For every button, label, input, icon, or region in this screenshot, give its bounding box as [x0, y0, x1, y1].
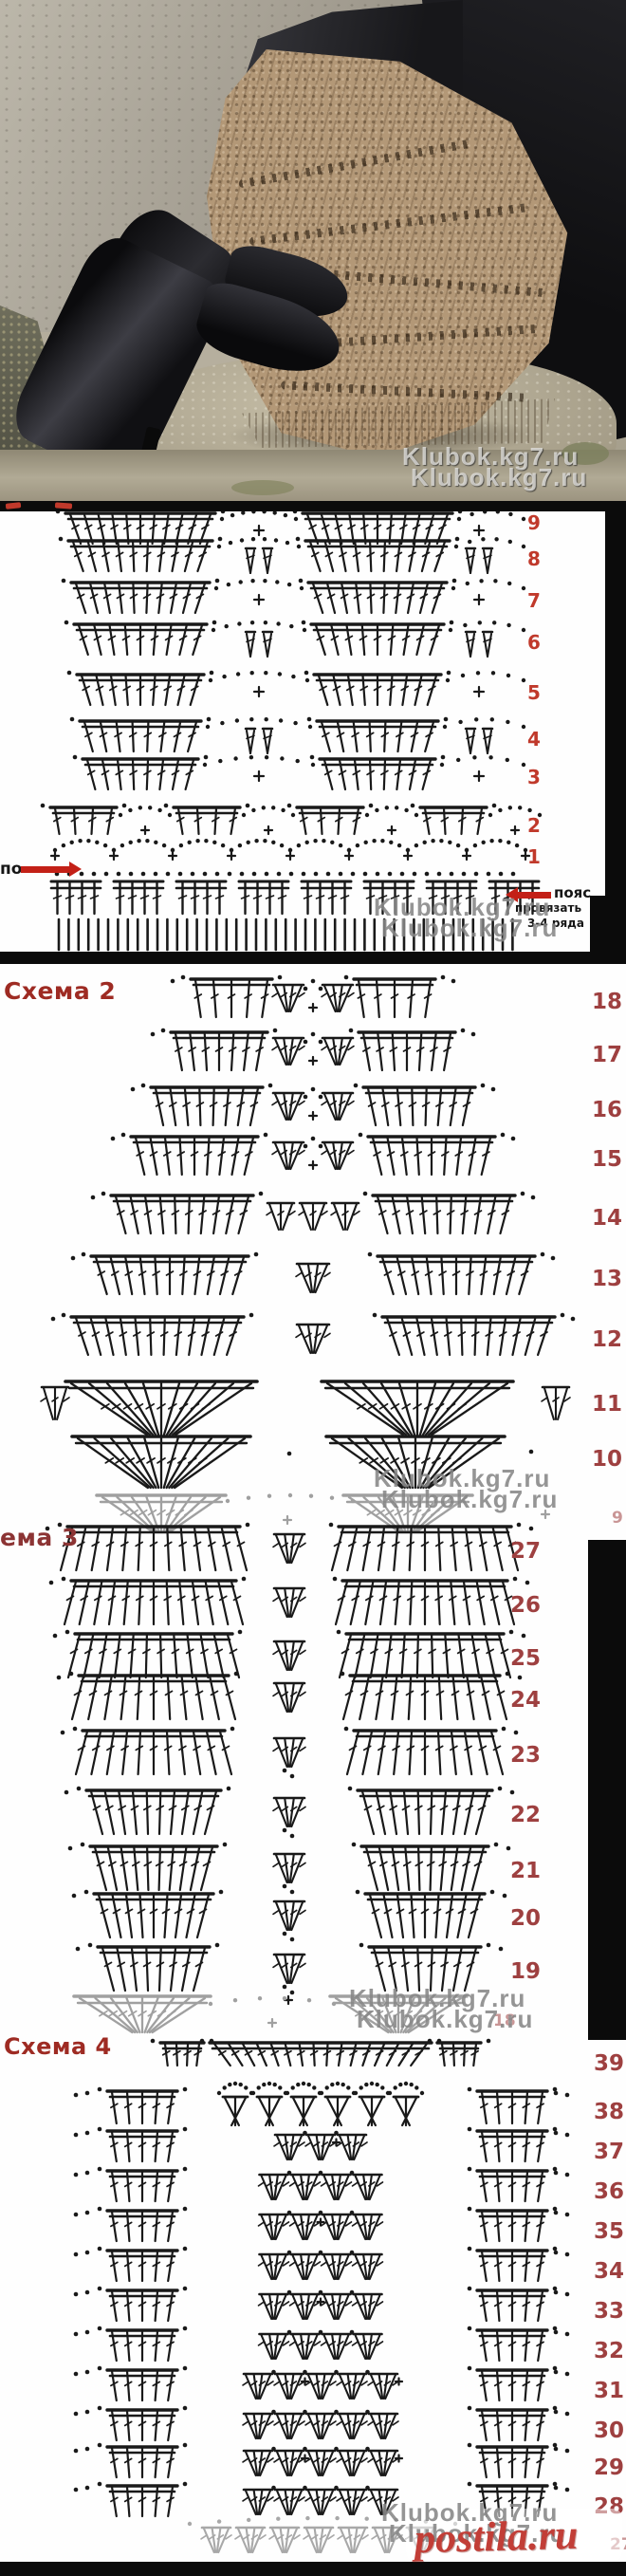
row-number: 24 [510, 1688, 541, 1713]
row-number: 26 [510, 1593, 541, 1618]
row-number: 6 [527, 631, 541, 654]
row-number: 36 [594, 2179, 624, 2204]
divider-bar [0, 2562, 626, 2576]
row-number: 2 [527, 814, 541, 837]
row-number: 5 [527, 681, 541, 704]
row-number: 21 [510, 1859, 541, 1883]
row-number: 11 [592, 1392, 622, 1417]
skirt-photo [0, 0, 626, 501]
divider-bar [0, 501, 626, 511]
row-number: 8 [527, 547, 541, 570]
row-number: 20 [510, 1906, 541, 1931]
row-number: 3 [527, 766, 541, 788]
row-number: 22 [510, 1803, 541, 1827]
row-number: 4 [527, 728, 541, 751]
row-number: 29 [594, 2456, 624, 2480]
row-number: 12 [592, 1327, 622, 1352]
row-number: 38 [594, 2100, 624, 2124]
schema4-label: Схема 4 [4, 2033, 112, 2060]
schema3-symbols [0, 1499, 586, 2042]
row-number: 32 [594, 2339, 624, 2363]
left-red-arrow-icon [21, 866, 70, 873]
schema2-symbols [0, 964, 626, 1543]
belt-label: пояс [554, 884, 591, 901]
left-annotation: по [0, 860, 22, 879]
row-number: 16 [592, 1098, 622, 1122]
schema2-label: Схема 2 [4, 977, 116, 1005]
cropped-label-mark [55, 502, 72, 509]
row-number: 14 [592, 1206, 622, 1231]
page-edge-strip [588, 1540, 626, 2040]
divider-bar [0, 952, 626, 964]
row-number: 37 [594, 2140, 624, 2164]
row-number: 27 [510, 1539, 541, 1564]
postila-watermark: postila.ru [414, 2511, 579, 2563]
row-number: 9 [527, 511, 541, 534]
row-number: 23 [510, 1743, 541, 1768]
row-number: 18 [592, 990, 622, 1014]
row-number: 30 [594, 2418, 624, 2443]
row-number: 7 [527, 589, 541, 612]
row-number: 1 [527, 845, 541, 868]
schema4-symbols [0, 2019, 626, 2562]
moss [231, 480, 294, 495]
klubok-watermark: Klubok.kg7.ru [411, 463, 587, 492]
row-number: 39 [594, 2051, 624, 2076]
row-number: 15 [592, 1147, 622, 1172]
row-number: 25 [510, 1646, 541, 1671]
row-number: 31 [594, 2379, 624, 2403]
row-number: 9 [612, 1509, 623, 1528]
row-number: 35 [594, 2219, 624, 2244]
schema3-label: ема 3 [0, 1524, 79, 1551]
pattern-page: Схема 2 ема 3 Схема 4 по пояс провязать … [0, 0, 626, 2576]
klubok-watermark: Klubok.kg7.ru [381, 1485, 558, 1514]
klubok-watermark: Klubok.kg7.ru [357, 2005, 533, 2034]
row-number: 17 [592, 1043, 622, 1067]
row-number: 19 [510, 1959, 541, 1984]
row-number: 13 [592, 1267, 622, 1291]
row-number: 10 [592, 1447, 622, 1472]
row-number: 33 [594, 2299, 624, 2324]
row-number: 34 [594, 2259, 624, 2284]
klubok-watermark: Klubok.kg7.ru [381, 914, 558, 943]
